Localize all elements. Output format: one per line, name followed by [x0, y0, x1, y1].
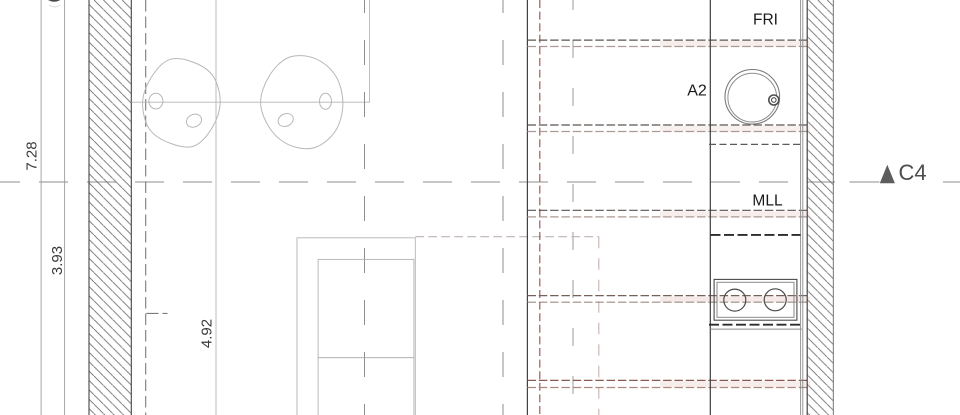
svg-text:4.92: 4.92 — [199, 319, 216, 348]
svg-text:MLL: MLL — [752, 193, 783, 210]
svg-text:FRI: FRI — [753, 12, 778, 29]
svg-text:A2: A2 — [687, 83, 707, 100]
svg-text:C4: C4 — [899, 160, 927, 185]
svg-text:3.93: 3.93 — [49, 246, 66, 275]
svg-text:7.28: 7.28 — [23, 141, 40, 170]
